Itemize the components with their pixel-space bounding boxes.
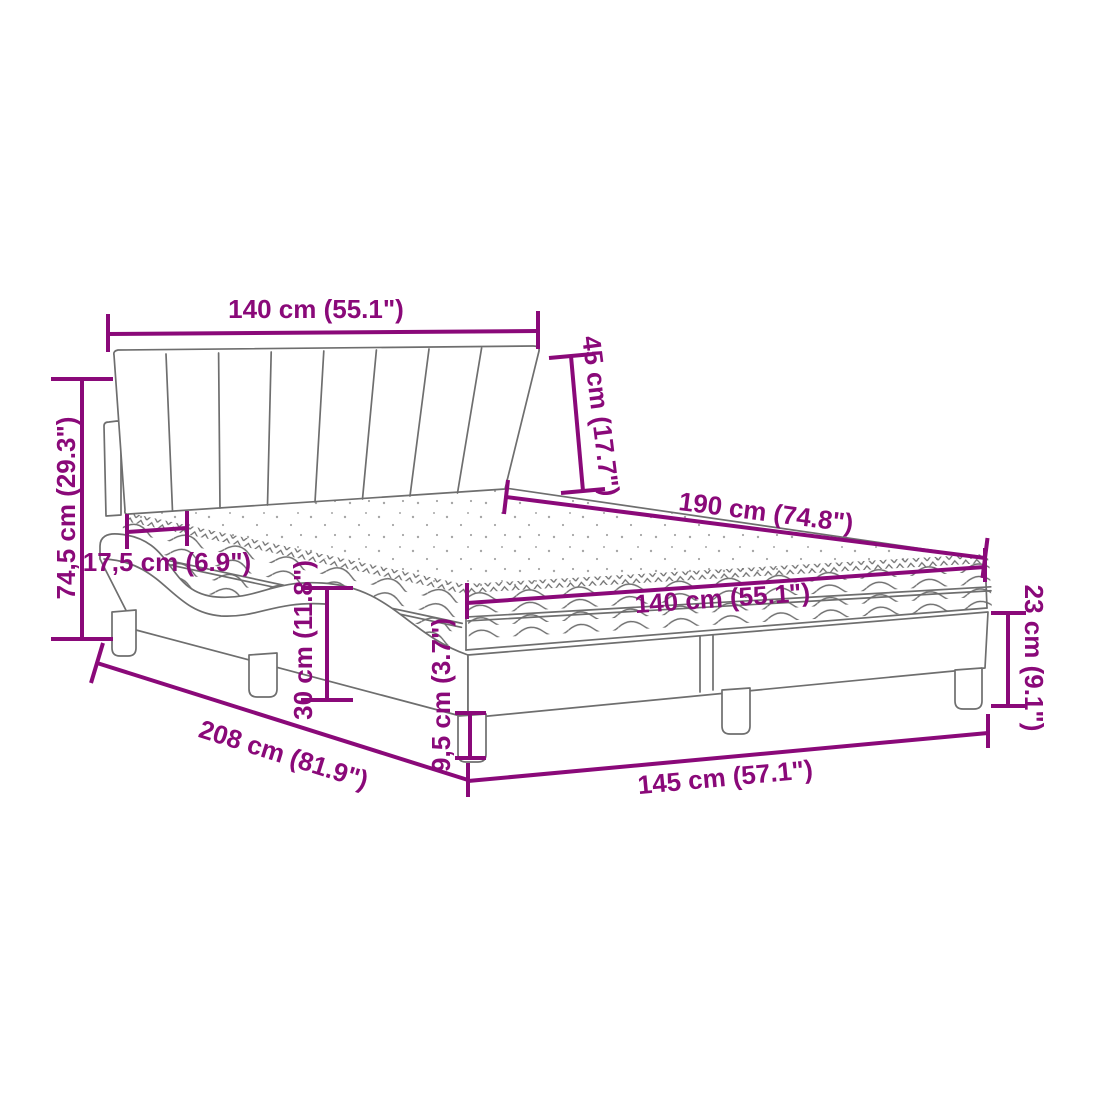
bed-leg (249, 653, 277, 697)
dimension-total-height-label: 74,5 cm (29.3") (51, 417, 81, 600)
bed-leg (955, 668, 982, 709)
dimension-headboard-width-label: 140 cm (55.1") (228, 294, 404, 324)
dimension-headboard-height: 45 cm (17.7") (549, 334, 626, 498)
dimension-base-length-label: 208 cm (81.9") (195, 714, 372, 795)
dimension-mattress-inset-label: 17,5 cm (6.9") (83, 547, 251, 577)
bed-leg (722, 688, 750, 734)
diagram-canvas: 140 cm (55.1") 45 cm (17.7") 190 cm (74.… (0, 0, 1100, 1100)
bed-leg (112, 610, 136, 656)
dimension-base-corner-height-label: 23 cm (9.1") (1019, 585, 1049, 732)
dimension-base-corner-height: 23 cm (9.1") (991, 585, 1049, 732)
dimension-leg-height-label: 9,5 cm (3.7") (426, 618, 456, 772)
dimension-headboard-height-label: 45 cm (17.7") (576, 334, 625, 498)
dimension-frame-side-height-label: 30 cm (11.8") (288, 560, 318, 720)
dimension-base-front-width-label: 145 cm (57.1") (636, 754, 814, 800)
dimension-total-height: 74,5 cm (29.3") (51, 379, 113, 639)
headboard (114, 346, 539, 514)
headboard-post (104, 421, 121, 516)
dimension-headboard-width: 140 cm (55.1") (108, 294, 538, 352)
bed-dimension-diagram: 140 cm (55.1") 45 cm (17.7") 190 cm (74.… (0, 0, 1100, 1100)
